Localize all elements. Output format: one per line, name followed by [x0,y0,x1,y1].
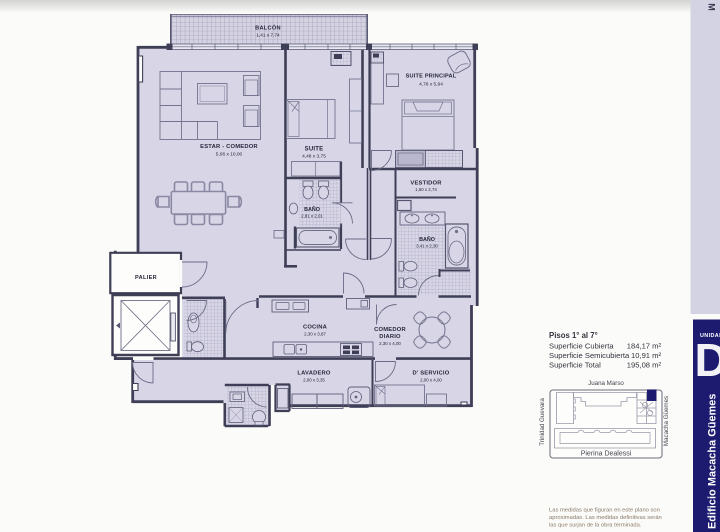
svg-text:VESTIDOR: VESTIDOR [410,181,442,187]
svg-text:2,00 x 3,35: 2,00 x 3,35 [303,378,325,383]
svg-text:Macacha Güemes: Macacha Güemes [663,396,670,446]
svg-text:LAVADERO: LAVADERO [297,371,331,377]
svg-text:10,91 m²: 10,91 m² [631,351,661,360]
svg-text:M: M [707,3,717,11]
svg-text:PALIER: PALIER [135,275,157,281]
svg-text:Edificio Macacha Güemes: Edificio Macacha Güemes [707,393,719,529]
svg-text:BAÑO: BAÑO [419,236,435,243]
svg-text:aproximadas. Las medidas defin: aproximadas. Las medidas definitivas ser… [549,515,662,521]
svg-text:COCINA: COCINA [303,325,328,331]
svg-text:las que surjan de la obra term: las que surjan de la obra terminada. [549,523,642,529]
svg-text:184,17 m²: 184,17 m² [627,342,662,351]
svg-text:Superficie Total: Superficie Total [549,361,601,370]
svg-text:Las medidas que figuran en est: Las medidas que figuran en este plano so… [549,508,660,514]
svg-text:5,06 x 10,00: 5,06 x 10,00 [216,152,243,158]
svg-text:2,30 x 4,00: 2,30 x 4,00 [379,341,401,346]
svg-text:BALCÓN: BALCÓN [255,24,281,32]
svg-text:ESTAR - COMEDOR: ESTAR - COMEDOR [200,144,258,150]
svg-text:Superficie Semicubierta: Superficie Semicubierta [549,351,630,360]
svg-text:D: D [695,334,720,386]
svg-text:4,78 x 5,94: 4,78 x 5,94 [419,82,443,88]
svg-text:DIARIO: DIARIO [379,334,401,340]
svg-text:1,60 x 2,74: 1,60 x 2,74 [415,187,437,192]
svg-text:1,41 x 7,74: 1,41 x 7,74 [256,33,280,38]
svg-text:4,48 x 3,75: 4,48 x 3,75 [302,154,326,160]
svg-text:Pisos 1° al 7°: Pisos 1° al 7° [549,331,598,340]
svg-text:Superficie Cubierta: Superficie Cubierta [549,342,614,351]
svg-text:2,00 x 4,00: 2,00 x 4,00 [420,378,442,383]
svg-text:2,81 x 2,01: 2,81 x 2,01 [301,214,323,219]
svg-text:COMEDOR: COMEDOR [374,327,406,333]
svg-text:BAÑO: BAÑO [304,206,320,213]
svg-text:Pierina Dealessi: Pierina Dealessi [581,451,632,458]
svg-text:3,41 x 2,30: 3,41 x 2,30 [416,244,438,249]
svg-text:SUITE PRINCIPAL: SUITE PRINCIPAL [406,74,457,80]
svg-text:D’ SERVICIO: D’ SERVICIO [413,371,450,377]
svg-text:195,08 m²: 195,08 m² [627,361,662,370]
svg-text:2,30 x 3,87: 2,30 x 3,87 [304,332,326,337]
svg-text:Juana Marso: Juana Marso [588,380,624,387]
svg-text:SUITE: SUITE [305,147,324,153]
svg-text:Trinidad Guevara: Trinidad Guevara [539,398,546,446]
